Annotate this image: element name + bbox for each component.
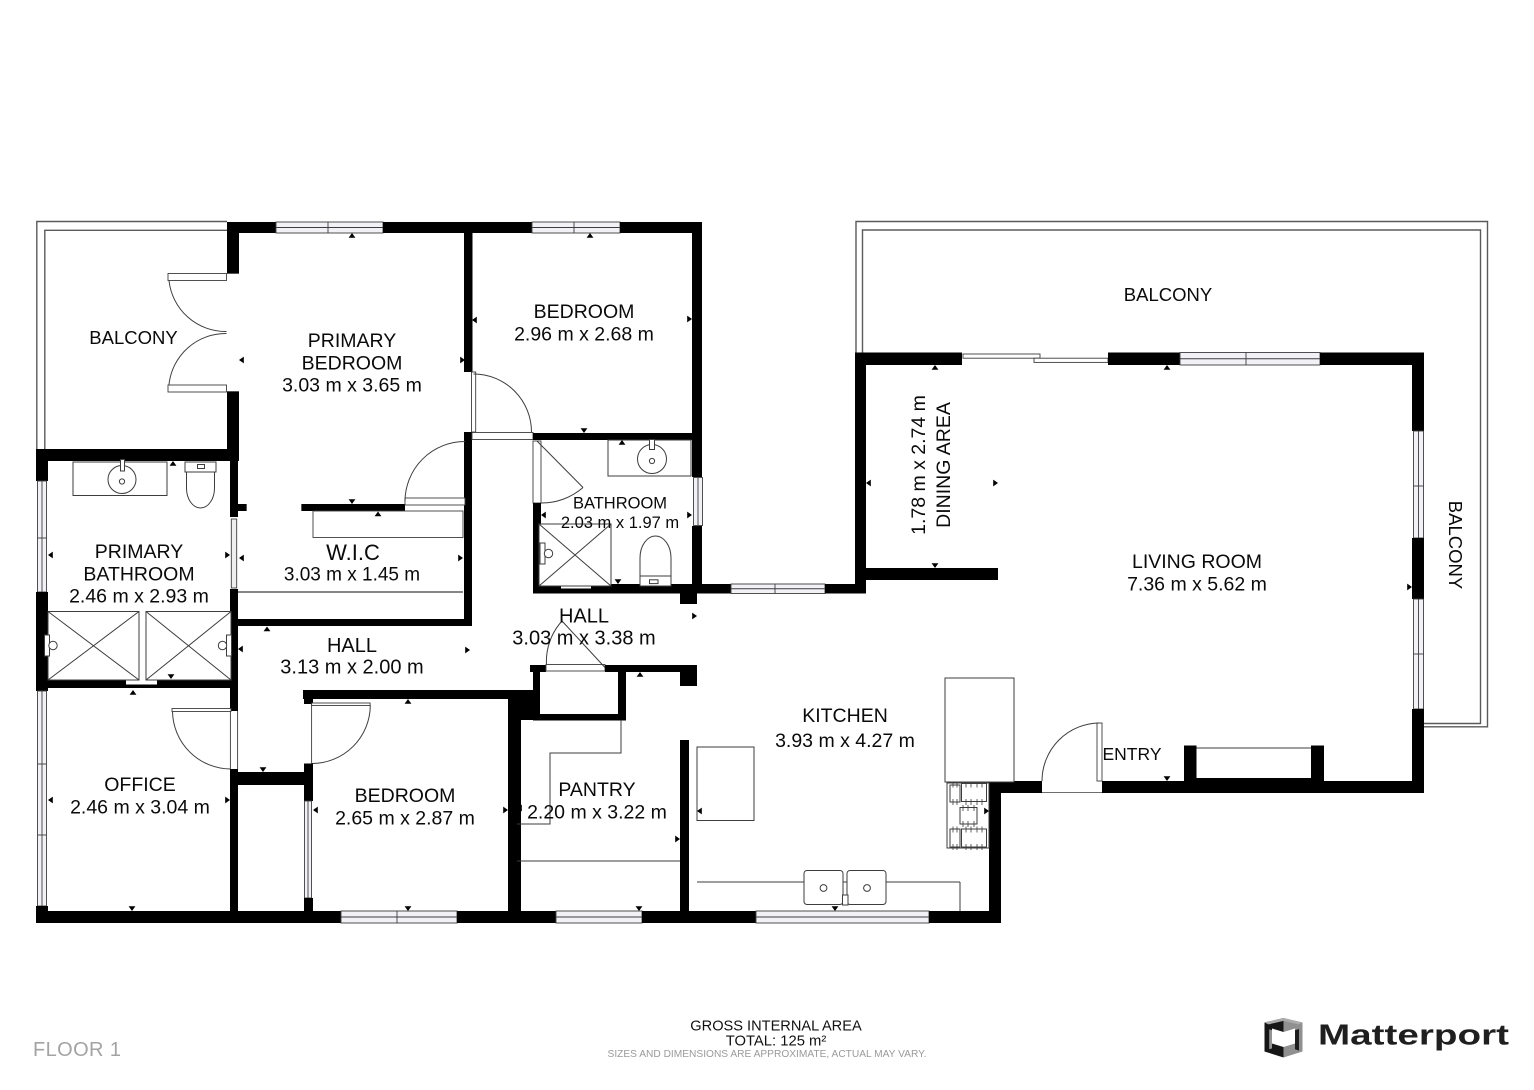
svg-text:2.96 m x 2.68 m: 2.96 m x 2.68 m (514, 323, 654, 345)
svg-text:HALL: HALL (559, 606, 609, 628)
svg-text:TOTAL: 125 m²: TOTAL: 125 m² (726, 1034, 827, 1050)
svg-text:7.36 m x 5.62 m: 7.36 m x 5.62 m (1127, 573, 1267, 595)
svg-text:3.13 m x 2.00 m: 3.13 m x 2.00 m (280, 657, 423, 679)
svg-text:3.03 m x 1.45 m: 3.03 m x 1.45 m (284, 565, 420, 586)
svg-text:3.03 m x 3.65 m: 3.03 m x 3.65 m (282, 375, 422, 397)
svg-text:BEDROOM: BEDROOM (534, 301, 635, 323)
svg-text:BATHROOM: BATHROOM (83, 563, 194, 585)
svg-text:3.03 m x 3.38 m: 3.03 m x 3.38 m (512, 628, 655, 650)
svg-text:HALL: HALL (327, 635, 377, 657)
svg-text:2.46 m x 3.04 m: 2.46 m x 3.04 m (70, 796, 210, 818)
svg-text:Matterport: Matterport (1318, 1020, 1509, 1052)
svg-text:PRIMARY: PRIMARY (95, 541, 184, 563)
svg-text:BEDROOM: BEDROOM (355, 785, 456, 807)
svg-text:KITCHEN: KITCHEN (802, 705, 888, 727)
svg-text:PANTRY: PANTRY (558, 779, 635, 801)
svg-text:2.20 m x 3.22 m: 2.20 m x 3.22 m (527, 801, 667, 823)
svg-text:GROSS INTERNAL AREA: GROSS INTERNAL AREA (690, 1019, 862, 1035)
svg-text:DINING AREA: DINING AREA (933, 402, 955, 528)
svg-text:2.03 m x 1.97 m: 2.03 m x 1.97 m (561, 514, 679, 532)
svg-text:SIZES AND DIMENSIONS ARE APPRO: SIZES AND DIMENSIONS ARE APPROXIMATE, AC… (608, 1049, 927, 1060)
svg-text:LIVING ROOM: LIVING ROOM (1132, 551, 1262, 573)
svg-text:ENTRY: ENTRY (1103, 744, 1162, 764)
svg-text:3.93 m x 4.27 m: 3.93 m x 4.27 m (775, 730, 915, 752)
svg-text:OFFICE: OFFICE (104, 774, 176, 796)
svg-text:PRIMARY: PRIMARY (308, 330, 397, 352)
svg-text:BATHROOM: BATHROOM (573, 495, 667, 513)
svg-text:BALCONY: BALCONY (89, 327, 177, 348)
svg-text:BALCONY: BALCONY (1124, 284, 1212, 305)
svg-text:1.78 m x 2.74 m: 1.78 m x 2.74 m (908, 395, 930, 535)
svg-text:2.65 m x 2.87 m: 2.65 m x 2.87 m (335, 807, 475, 829)
svg-text:BALCONY: BALCONY (1445, 501, 1466, 589)
svg-text:BEDROOM: BEDROOM (302, 352, 403, 374)
svg-text:2.46 m x 2.93 m: 2.46 m x 2.93 m (69, 586, 209, 608)
svg-text:W.I.C: W.I.C (326, 540, 380, 565)
svg-text:FLOOR 1: FLOOR 1 (33, 1039, 121, 1061)
